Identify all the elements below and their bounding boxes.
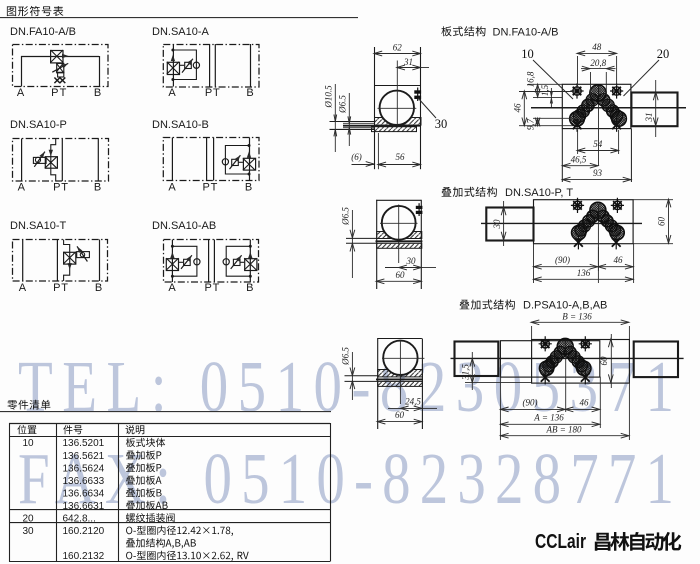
svg-text:24,5: 24,5 bbox=[405, 397, 421, 407]
svg-text:B: B bbox=[246, 87, 253, 99]
svg-text:62: 62 bbox=[393, 42, 403, 52]
svg-text:46: 46 bbox=[614, 255, 624, 265]
svg-text:B = 136: B = 136 bbox=[562, 312, 592, 322]
svg-text:30: 30 bbox=[435, 117, 448, 131]
svg-text:T: T bbox=[61, 282, 68, 294]
svg-text:136.6633: 136.6633 bbox=[63, 476, 105, 487]
svg-text:A: A bbox=[168, 87, 176, 99]
svg-text:1,5: 1,5 bbox=[540, 84, 550, 96]
svg-text:Ø10.5: Ø10.5 bbox=[323, 85, 333, 109]
svg-text:D.PSA10-A,B,AB: D.PSA10-A,B,AB bbox=[523, 300, 607, 312]
svg-text:B: B bbox=[94, 87, 101, 99]
svg-text:136.6634: 136.6634 bbox=[63, 488, 105, 499]
svg-text:(90): (90) bbox=[555, 255, 570, 265]
svg-text:10: 10 bbox=[521, 47, 534, 61]
svg-text:46: 46 bbox=[513, 103, 523, 113]
svg-text:P: P bbox=[203, 182, 210, 194]
svg-text:T: T bbox=[213, 282, 220, 294]
svg-text:A: A bbox=[19, 282, 27, 294]
svg-text:P: P bbox=[53, 282, 60, 294]
svg-text:9,7: 9,7 bbox=[525, 118, 535, 130]
svg-text:10: 10 bbox=[22, 438, 34, 449]
svg-text:48: 48 bbox=[592, 42, 602, 52]
svg-text:Ø6.5: Ø6.5 bbox=[341, 347, 351, 366]
svg-text:30: 30 bbox=[406, 256, 417, 266]
svg-text:A: A bbox=[18, 182, 26, 194]
svg-text:B: B bbox=[94, 182, 101, 194]
svg-text:A: A bbox=[168, 282, 176, 294]
svg-text:B: B bbox=[245, 182, 252, 194]
svg-text:60: 60 bbox=[395, 410, 405, 420]
svg-text:DN.SA10-AB: DN.SA10-AB bbox=[152, 220, 216, 232]
svg-text:B: B bbox=[246, 282, 253, 294]
svg-text:60: 60 bbox=[396, 270, 406, 280]
svg-text:CCLair: CCLair bbox=[535, 531, 586, 553]
svg-text:136.5624: 136.5624 bbox=[63, 463, 105, 474]
svg-text:136.5201: 136.5201 bbox=[63, 438, 105, 449]
svg-text:60: 60 bbox=[656, 217, 666, 227]
svg-text:Ø6.5: Ø6.5 bbox=[341, 207, 351, 226]
svg-text:54: 54 bbox=[593, 139, 603, 149]
svg-text:136: 136 bbox=[577, 268, 591, 278]
svg-text:93: 93 bbox=[593, 168, 603, 178]
svg-text:30: 30 bbox=[22, 526, 34, 537]
svg-text:31,5: 31,5 bbox=[461, 364, 471, 381]
svg-text:P: P bbox=[205, 87, 212, 99]
svg-text:31: 31 bbox=[644, 113, 654, 123]
svg-text:T: T bbox=[211, 182, 218, 194]
svg-text:DN.FA10-A/B: DN.FA10-A/B bbox=[493, 26, 559, 38]
svg-text:160.2120: 160.2120 bbox=[63, 526, 105, 537]
svg-text:31: 31 bbox=[403, 57, 413, 67]
svg-text:46,5: 46,5 bbox=[571, 155, 587, 165]
svg-text:Ø6.5: Ø6.5 bbox=[338, 95, 348, 114]
svg-text:136.5621: 136.5621 bbox=[63, 451, 105, 462]
svg-text:20: 20 bbox=[22, 514, 34, 525]
svg-text:P: P bbox=[53, 182, 60, 194]
svg-text:DN.SA10-P, T: DN.SA10-P, T bbox=[505, 187, 573, 199]
svg-text:DN.SA10-A: DN.SA10-A bbox=[152, 26, 210, 38]
svg-text:20,8: 20,8 bbox=[590, 58, 606, 68]
svg-text:30: 30 bbox=[492, 219, 502, 230]
svg-text:16,8: 16,8 bbox=[525, 71, 535, 87]
svg-text:FAX: 0510-82328771: FAX: 0510-82328771 bbox=[18, 439, 674, 519]
svg-text:AB = 180: AB = 180 bbox=[545, 424, 582, 434]
svg-text:(6): (6) bbox=[351, 152, 362, 162]
svg-text:T: T bbox=[213, 87, 220, 99]
svg-text:DN.SA10-B: DN.SA10-B bbox=[152, 119, 209, 131]
svg-text:56: 56 bbox=[396, 152, 406, 162]
svg-text:20: 20 bbox=[657, 47, 670, 61]
svg-text:P: P bbox=[51, 87, 58, 99]
svg-text:642.8...: 642.8... bbox=[63, 514, 96, 525]
svg-text:B: B bbox=[95, 282, 102, 294]
svg-text:A: A bbox=[17, 87, 25, 99]
svg-text:T: T bbox=[60, 87, 67, 99]
svg-text:DN.SA10-T: DN.SA10-T bbox=[10, 220, 67, 232]
svg-text:A: A bbox=[168, 182, 176, 194]
svg-text:P: P bbox=[205, 282, 212, 294]
svg-text:DN.SA10-P: DN.SA10-P bbox=[10, 119, 67, 131]
svg-text:60: 60 bbox=[599, 356, 609, 366]
svg-text:(90): (90) bbox=[523, 397, 538, 407]
svg-text:DN.FA10-A/B: DN.FA10-A/B bbox=[10, 26, 76, 38]
svg-text:T: T bbox=[61, 182, 68, 194]
svg-text:160.2132: 160.2132 bbox=[63, 551, 105, 562]
svg-text:46: 46 bbox=[580, 397, 590, 407]
svg-text:A = 136: A = 136 bbox=[533, 413, 564, 423]
svg-text:136.6631: 136.6631 bbox=[63, 501, 105, 512]
